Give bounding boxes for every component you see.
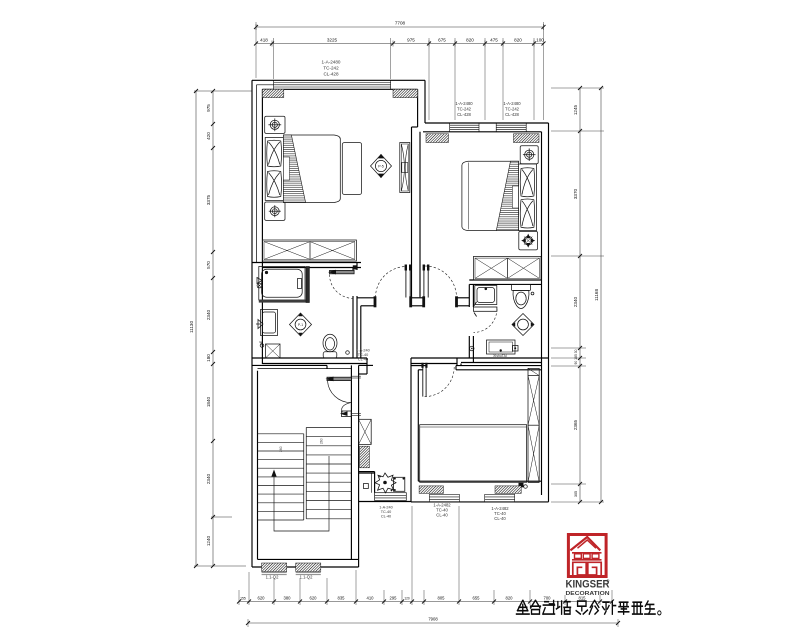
svg-text:805: 805 [438,596,446,601]
svg-text:1-A-2480: 1-A-2480 [455,101,473,106]
svg-text:7908: 7908 [428,617,438,622]
svg-text:820: 820 [506,596,514,601]
svg-text:820: 820 [466,38,474,43]
svg-text:1.1-Q2: 1.1-Q2 [300,575,313,580]
svg-text:CL-428: CL-428 [505,112,519,117]
svg-text:675: 675 [438,38,446,43]
svg-text:260: 260 [320,438,324,444]
svg-text:975: 975 [407,38,415,43]
svg-text:P-5: P-5 [378,165,384,169]
svg-text:155: 155 [240,597,246,601]
svg-text:820: 820 [514,38,522,43]
svg-text:260: 260 [279,446,283,452]
svg-text:CL-40: CL-40 [358,358,368,362]
svg-text:CL-40: CL-40 [494,516,506,521]
svg-text:1240: 1240 [206,535,211,546]
svg-text:420: 420 [206,132,211,140]
svg-text:835: 835 [338,596,346,601]
svg-text:1.1-Q2: 1.1-Q2 [266,575,279,580]
svg-text:TC-242: TC-242 [505,107,520,112]
svg-text:1840: 1840 [206,396,211,407]
svg-text:620: 620 [310,596,318,601]
svg-text:655: 655 [473,596,481,601]
svg-text:11130: 11130 [189,321,194,334]
svg-text:120: 120 [404,597,410,601]
svg-text:475: 475 [490,38,498,43]
svg-text:620: 620 [258,596,266,601]
svg-text:700: 700 [544,596,552,601]
svg-text:410: 410 [367,596,375,601]
svg-text:180: 180 [206,354,211,362]
svg-text:TC-242: TC-242 [457,107,472,112]
svg-text:XIshuTAI: XIshuTAI [493,354,507,358]
svg-text:2340: 2340 [206,309,211,320]
svg-text:2365: 2365 [573,419,578,430]
svg-text:CL-428: CL-428 [457,112,471,117]
svg-text:305: 305 [574,491,578,497]
svg-text:380: 380 [284,596,292,601]
svg-text:®: ® [607,578,610,583]
svg-text:1245: 1245 [573,104,578,115]
svg-text:975: 975 [206,104,211,112]
svg-text:P-1: P-1 [298,323,303,327]
svg-text:3375: 3375 [206,194,211,205]
svg-text:CL-40: CL-40 [436,513,448,518]
svg-text:DECORATION: DECORATION [566,591,610,597]
svg-text:570: 570 [206,261,211,269]
svg-text:11168: 11168 [594,289,599,302]
svg-text:1-A-2480: 1-A-2480 [503,101,521,106]
svg-text:TC-40: TC-40 [381,510,392,514]
svg-text:2340: 2340 [206,473,211,484]
svg-text:CL-40: CL-40 [381,515,391,519]
svg-text:90 185 30: 90 185 30 [574,349,578,364]
svg-text:3370: 3370 [573,188,578,199]
svg-text:295: 295 [390,596,398,601]
svg-text:418: 418 [260,38,268,43]
svg-text:1-A-2480: 1-A-2480 [322,60,341,65]
svg-text:1-A-240: 1-A-240 [379,506,393,510]
svg-text:100: 100 [536,38,544,43]
svg-text:KINGSER: KINGSER [566,579,610,591]
svg-text:3225: 3225 [327,38,338,43]
svg-text:TC-40: TC-40 [358,353,369,357]
svg-text:2340: 2340 [573,296,578,307]
svg-text:7708: 7708 [395,20,406,25]
svg-text:1-A-240: 1-A-240 [356,349,370,353]
svg-text:TC-242: TC-242 [323,66,339,71]
svg-text:CL-428: CL-428 [323,72,339,77]
